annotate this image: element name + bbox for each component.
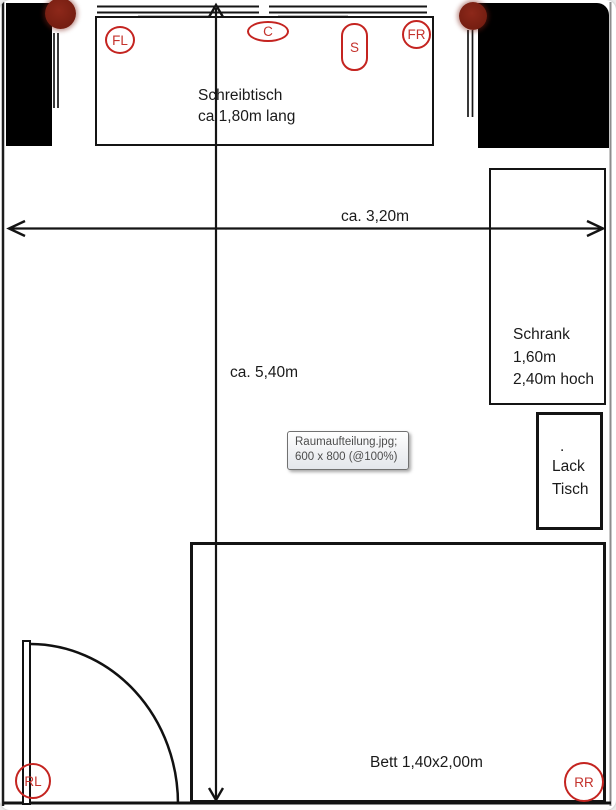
window-dark-pane-left	[6, 3, 52, 146]
marker-front-left: FL	[105, 26, 135, 54]
marker-center: C	[247, 21, 289, 42]
marker-front-left-label: FL	[112, 33, 128, 48]
dimension-height-label: ca. 5,40m	[230, 362, 298, 383]
window-top-left-segment	[97, 7, 259, 13]
floorplan-image: Schreibtischca 1,80m lang Schrank1,60m2,…	[0, 0, 616, 810]
marker-front-right-label: FR	[408, 27, 426, 42]
desk-label-line1: Schreibtisch	[198, 87, 282, 104]
wardrobe-label-line2: 1,60m	[513, 349, 556, 366]
tooltip-dimensions: 600 x 800 (@100%)	[295, 451, 397, 463]
viewer-tooltip: Raumaufteilung.jpg;600 x 800 (@100%)	[287, 431, 409, 470]
dimension-width-label: ca. 3,20m	[341, 206, 409, 227]
lacquer-table-label: LackTisch	[552, 456, 588, 501]
tooltip-filename: Raumaufteilung.jpg;	[295, 436, 397, 448]
marker-sub-label: S	[350, 40, 359, 55]
door-swing-arc	[31, 644, 178, 804]
marker-rear-right: RR	[564, 762, 604, 802]
marker-rear-right-label: RR	[574, 775, 594, 790]
window-top-right-segment	[269, 7, 427, 13]
wardrobe-label: Schrank1,60m2,40m hoch	[513, 324, 594, 392]
marker-rear-left-label: RL	[24, 774, 41, 789]
desk-label-line2: ca 1,80m lang	[198, 108, 295, 125]
desk-label: Schreibtischca 1,80m lang	[198, 85, 295, 127]
wardrobe-label-line3: 2,40m hoch	[513, 371, 594, 388]
lacquer-table-stray-dot: .	[560, 436, 564, 457]
lacquer-table-label-line1: Lack	[552, 458, 585, 475]
marker-rear-left: RL	[15, 763, 51, 799]
window-dark-pane-right	[478, 3, 609, 148]
window-side-right-lines	[468, 30, 473, 117]
marker-center-label: C	[263, 24, 273, 39]
maroon-dot-right	[459, 2, 487, 30]
marker-sub: S	[341, 23, 368, 71]
bed-label: Bett 1,40x2,00m	[370, 752, 483, 773]
wardrobe-label-line1: Schrank	[513, 326, 570, 343]
window-side-left-lines	[54, 33, 58, 108]
lacquer-table-label-line2: Tisch	[552, 481, 588, 498]
marker-front-right: FR	[402, 20, 431, 49]
